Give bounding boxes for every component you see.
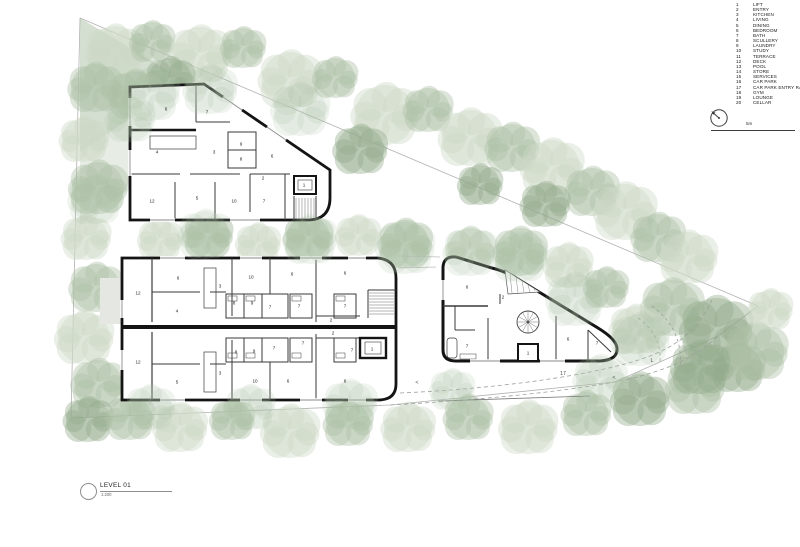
building-b-plan <box>122 258 396 400</box>
paving-patch <box>100 278 122 324</box>
room-label: 7 <box>263 199 266 204</box>
room-label: 4 <box>156 150 159 155</box>
room-label: 6 <box>466 285 469 290</box>
room-label: 9 <box>251 301 254 306</box>
room-label: 8 <box>240 157 243 162</box>
room-label: 5 <box>176 380 179 385</box>
room-label: 5 <box>196 196 199 201</box>
spiral-stair-icon <box>517 311 539 333</box>
room-label: 7 <box>302 341 305 346</box>
site-plan-drawing <box>0 0 800 547</box>
room-label: 12 <box>135 360 140 365</box>
legend-item-label: CELLAR <box>753 100 771 105</box>
room-label: 6 <box>165 107 168 112</box>
legend-item-number: 20 <box>736 100 753 105</box>
sheet-title: LEVEL 01 <box>100 482 131 489</box>
room-label: 7 <box>466 344 469 349</box>
room-label: 7 <box>269 305 272 310</box>
room-label: 7 <box>344 304 347 309</box>
room-label: 2 <box>332 331 335 336</box>
room-label: 8 <box>233 301 236 306</box>
room-label: 6 <box>287 379 290 384</box>
room-label: 3 <box>213 150 216 155</box>
room-label: 6 <box>177 276 180 281</box>
room-label: 7 <box>298 304 301 309</box>
room-label: 6 <box>567 337 570 342</box>
scale-bar-label: 5m <box>746 121 752 126</box>
room-label: 2 <box>502 295 505 300</box>
north-arrow-icon <box>706 106 732 130</box>
room-label: 2 <box>330 318 333 323</box>
room-label: 1 <box>303 183 306 188</box>
room-label: 1 <box>527 351 530 356</box>
legend-item: 20 CELLAR <box>736 100 800 105</box>
room-label: 10 <box>248 275 253 280</box>
room-label: 3 <box>219 371 222 376</box>
road-annotation: < <box>612 375 615 381</box>
room-label: 7 <box>596 341 599 346</box>
room-label: 10 <box>231 199 236 204</box>
room-label: 7 <box>206 110 209 115</box>
room-label: 6 <box>291 272 294 277</box>
room-label: 3 <box>219 284 222 289</box>
room-label: 6 <box>271 154 274 159</box>
road-annotation: < <box>415 380 418 386</box>
road-annotation: 17 <box>560 371 566 377</box>
floor-plan-sheet: 1 LIFT 2 ENTRY 3 KITCHEN 4 LIVING 5 DINI… <box>0 0 800 547</box>
room-label: 6 <box>344 271 347 276</box>
legend: 1 LIFT 2 ENTRY 3 KITCHEN 4 LIVING 5 DINI… <box>736 2 800 105</box>
scale-bar <box>711 130 795 131</box>
room-label: 9 <box>253 349 256 354</box>
road-annotation: L <box>651 358 654 364</box>
room-label: 12 <box>149 199 154 204</box>
room-label: 10 <box>252 379 257 384</box>
title-bubble-icon <box>80 483 97 500</box>
sheet-scale: 1:200 <box>101 492 111 497</box>
room-label: 12 <box>135 291 140 296</box>
room-label: 9 <box>240 142 243 147</box>
room-label: 8 <box>235 350 238 355</box>
room-label: 1 <box>371 347 374 352</box>
room-label: 4 <box>176 309 179 314</box>
room-label: 7 <box>351 348 354 353</box>
room-label: 6 <box>344 379 347 384</box>
room-label: 2 <box>262 176 265 181</box>
room-label: 7 <box>273 346 276 351</box>
